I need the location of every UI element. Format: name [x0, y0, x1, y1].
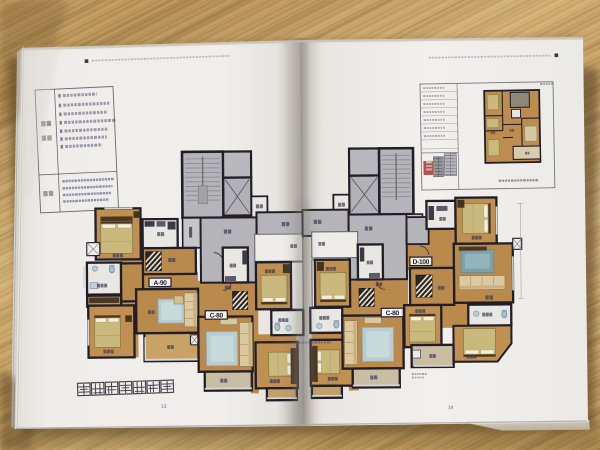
svg-text:D-100: D-100 [413, 259, 430, 266]
svg-text:C-80: C-80 [386, 310, 400, 317]
svg-text:C-80: C-80 [210, 312, 224, 319]
svg-text:13: 13 [161, 404, 167, 410]
svg-text:14: 14 [448, 405, 454, 411]
svg-text:A-90: A-90 [153, 280, 167, 287]
